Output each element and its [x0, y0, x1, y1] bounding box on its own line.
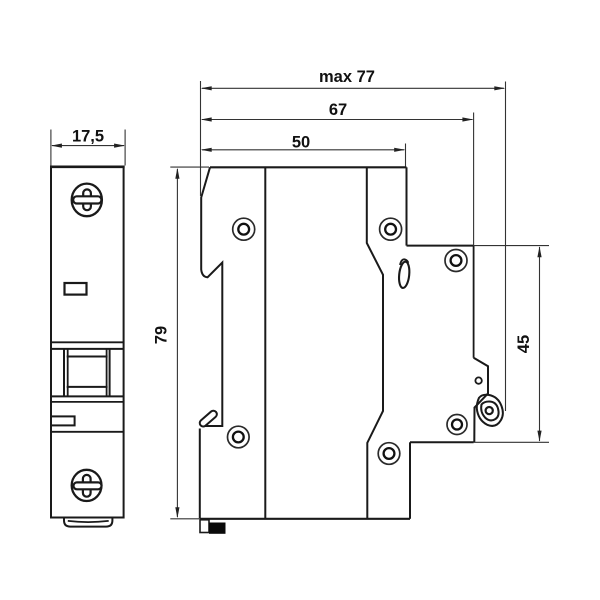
svg-text:50: 50 [292, 133, 310, 151]
svg-text:max 77: max 77 [319, 68, 375, 86]
svg-text:67: 67 [329, 101, 347, 119]
svg-text:17,5: 17,5 [72, 128, 104, 146]
svg-text:45: 45 [515, 335, 533, 353]
svg-text:79: 79 [153, 326, 171, 344]
